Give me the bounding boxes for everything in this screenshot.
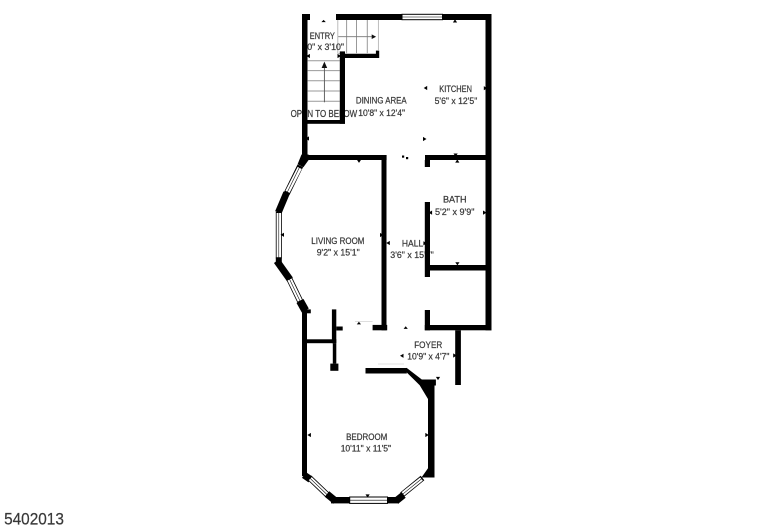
svg-text:0" x 3'10": 0" x 3'10" <box>307 42 344 52</box>
svg-text:10'9" x 4'7": 10'9" x 4'7" <box>407 352 449 362</box>
svg-text:OPEN TO BELOW: OPEN TO BELOW <box>291 109 358 120</box>
svg-text:BEDROOM: BEDROOM <box>346 432 387 442</box>
svg-text:ENTRY: ENTRY <box>310 31 335 41</box>
svg-text:HALL: HALL <box>402 238 423 248</box>
svg-text:KITCHEN: KITCHEN <box>439 84 472 94</box>
svg-text:5'6" x 12'5": 5'6" x 12'5" <box>435 96 478 106</box>
svg-text:9'2" x 15'1": 9'2" x 15'1" <box>317 248 360 258</box>
svg-text:DINING AREA: DINING AREA <box>356 96 407 106</box>
svg-text:5402013: 5402013 <box>4 510 64 529</box>
svg-text:10'11" x 11'5": 10'11" x 11'5" <box>341 444 391 454</box>
svg-text:5'2" x 9'9": 5'2" x 9'9" <box>435 207 475 217</box>
svg-text:LIVING ROOM: LIVING ROOM <box>311 236 364 246</box>
svg-text:BATH: BATH <box>443 195 467 205</box>
svg-text:FOYER: FOYER <box>414 340 442 350</box>
svg-text:10'8" x 12'4": 10'8" x 12'4" <box>358 108 405 118</box>
